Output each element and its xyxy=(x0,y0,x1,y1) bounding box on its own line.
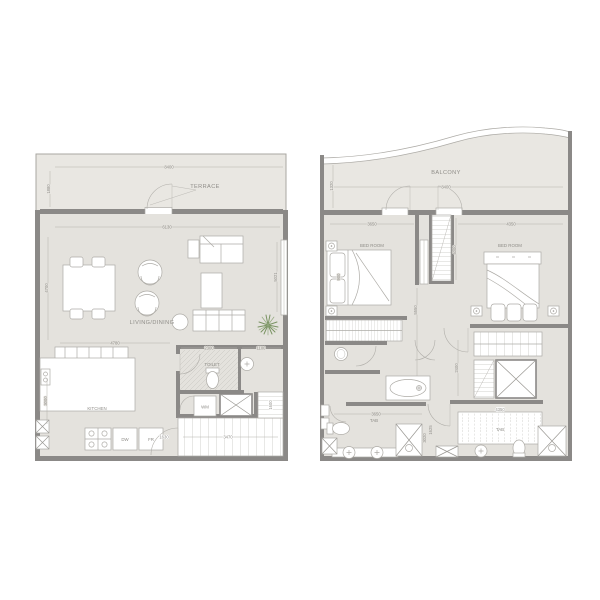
toilet-left-bath xyxy=(327,423,350,435)
room-label-living-dining: LIVING/DINING xyxy=(130,320,175,326)
kitchen-sink xyxy=(41,369,50,385)
floor-plan-drawing: TERRACE 8400 1880 xyxy=(0,0,600,600)
appliance-label-dw: DW xyxy=(121,437,129,442)
dim-stair-depth: 1600 xyxy=(268,400,273,410)
floor-plan-canvas: TERRACE 8400 1880 xyxy=(0,0,600,600)
dim-stair-width: 3470 xyxy=(223,435,233,440)
washbasin xyxy=(241,358,254,371)
shower-right-bath xyxy=(538,426,566,456)
sconce-top-left xyxy=(326,241,337,251)
dim-hall-width: 4350 xyxy=(495,407,505,412)
dim-balcony-depth: 1320 xyxy=(329,181,334,191)
dim-bed-width: 900 xyxy=(336,273,341,281)
bed-right xyxy=(484,252,541,321)
balcony-area: BALCONY 8400 1320 xyxy=(320,127,572,216)
appliance-label-wm: WM xyxy=(201,405,209,410)
dim-window-height: 5021 xyxy=(273,272,278,282)
dim-living-width: 6130 xyxy=(162,225,172,230)
dim-toilet-width: 2300 xyxy=(204,346,214,351)
dim-bath-depth: 1625 xyxy=(428,425,433,435)
shower-left-bath xyxy=(396,424,422,456)
dishwasher: DW xyxy=(113,428,137,450)
toilet-right-bath xyxy=(513,440,525,457)
upper-floor-plan: BALCONY 8400 1320 BED ROOM 3650 xyxy=(320,127,572,461)
washing-machine: WM xyxy=(194,396,216,416)
dim-balcony-width: 8400 xyxy=(441,185,451,190)
dim-terrace-depth: 1880 xyxy=(46,184,51,194)
room-label-bedroom-left: BED ROOM xyxy=(360,243,384,248)
dim-bedroom-left-width: 3650 xyxy=(367,222,377,227)
terrace-area: TERRACE 8400 1880 xyxy=(36,154,286,215)
room-label-terrace: TERRACE xyxy=(190,184,220,190)
dim-shower-depth: 3020 xyxy=(422,433,427,443)
toilet-fixture xyxy=(206,368,219,389)
shaft-left-bath xyxy=(322,438,337,454)
dim-kitchen-depth: 3000 xyxy=(43,396,48,406)
room-label-bedroom-right: BED ROOM xyxy=(498,243,522,248)
sconce-bedroom-right-left xyxy=(471,306,482,316)
sconce-bedroom-right-right xyxy=(548,306,559,316)
dim-living-depth: 4700 xyxy=(44,283,49,293)
dim-entry-width: 1630 xyxy=(159,435,169,440)
dim-bedroom-right-width: 4350 xyxy=(506,222,516,227)
coffee-table xyxy=(201,273,222,308)
room-label-kitchen: KITCHEN xyxy=(87,406,106,411)
vanity-sinks xyxy=(332,447,398,459)
appliance-label-fr: FR xyxy=(148,437,154,442)
dim-shaft-width: 1100 xyxy=(256,346,266,351)
pouf xyxy=(172,314,188,330)
room-label-bathroom-right: TAB xyxy=(496,427,504,432)
lower-floor-plan: TERRACE 8400 1880 xyxy=(35,154,288,461)
dim-stairs-depth: 4000 xyxy=(452,245,457,255)
dim-kitchen-width: 4780 xyxy=(110,341,120,346)
elevator-shaft xyxy=(220,394,252,416)
room-label-bathroom-left: TAB xyxy=(370,418,378,423)
dining-table xyxy=(63,257,115,319)
sconce-bottom-left xyxy=(326,306,337,316)
dim-corridor-depth: 5550 xyxy=(413,305,418,315)
dim-terrace-width: 8400 xyxy=(164,165,174,170)
room-label-balcony: BALCONY xyxy=(431,170,461,176)
closet-left xyxy=(325,316,407,345)
elevator-shaft-upper xyxy=(496,360,536,398)
sofa-bottom xyxy=(193,310,245,331)
shaft-center-bottom xyxy=(436,446,458,457)
dim-hall-depth: 2400 xyxy=(454,363,459,373)
room-label-toilet: TOILET xyxy=(204,362,220,367)
sink-right-bath xyxy=(475,445,487,457)
stove xyxy=(85,428,111,450)
dim-bathroom-width: 3650 xyxy=(371,412,381,417)
